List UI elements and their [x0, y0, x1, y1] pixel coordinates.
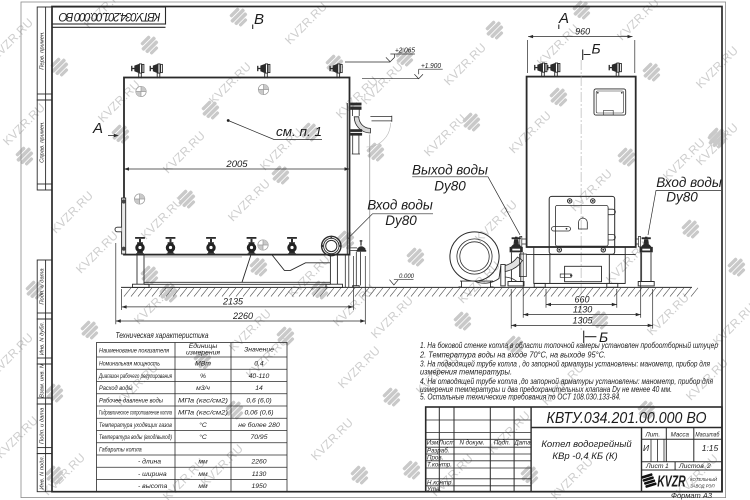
svg-text:°С: °С [199, 421, 207, 429]
svg-text:660: 660 [574, 294, 589, 304]
svg-text:Котел водогрейный: Котел водогрейный [541, 439, 632, 450]
svg-text:Лист: Лист [438, 440, 455, 447]
svg-text:1130: 1130 [252, 471, 267, 478]
svg-text:Лист: Лист [645, 463, 664, 470]
svg-text:Dy80: Dy80 [385, 213, 417, 228]
svg-text:Подп.: Подп. [494, 440, 510, 447]
svg-text:Листов: Листов [678, 463, 704, 470]
svg-text:+1.900: +1.900 [421, 63, 441, 70]
svg-text:Номинальная мощность: Номинальная мощность [99, 361, 160, 368]
svg-text:Взам. инв. N: Взам. инв. N [39, 363, 45, 398]
svg-text:14: 14 [255, 385, 263, 392]
svg-text:Масштаб: Масштаб [695, 431, 719, 438]
svg-text:МПа (кгс/см2): МПа (кгс/см2) [178, 397, 228, 404]
svg-text:5. Остальные технические треб: 5. Остальные технические требования по О… [420, 392, 621, 401]
svg-text:не более 280: не более 280 [238, 421, 280, 429]
svg-text:0,06 (0,6): 0,06 (0,6) [244, 410, 273, 417]
svg-text:Подп. и дата: Подп. и дата [39, 268, 45, 305]
svg-text:Температура воды (вход/выход): Температура воды (вход/выход) [99, 433, 172, 441]
svg-text:МПа (кгс/см2): МПа (кгс/см2) [178, 410, 228, 417]
svg-text:мм: мм [198, 459, 208, 466]
svg-text:Выход воды: Выход воды [412, 163, 488, 178]
svg-text:Т.контр.: Т.контр. [427, 461, 452, 468]
svg-text:Температура уходящих газов: Температура уходящих газов [99, 421, 172, 429]
svg-text:Вход воды: Вход воды [656, 175, 722, 190]
svg-text:Лит.: Лит. [645, 431, 661, 438]
svg-text:2005: 2005 [225, 159, 248, 170]
svg-text:Справ. примен.: Справ. примен. [39, 121, 45, 163]
svg-text:1:15: 1:15 [702, 443, 719, 453]
svg-text:1. На боковой стенке котла в: 1. На боковой стенке котла в области топ… [420, 341, 718, 350]
svg-text:Инв. N дубл.: Инв. N дубл. [39, 322, 45, 356]
svg-text:А: А [92, 120, 103, 137]
svg-text:измерения температуры.: измерения температуры. [420, 368, 512, 377]
svg-text:мм: мм [198, 483, 208, 490]
svg-text:КВТУ.034.201.00.000 ВО: КВТУ.034.201.00.000 ВО [547, 410, 707, 427]
svg-text:Диапазон рабочего регулировани: Диапазон рабочего регулирования [98, 372, 172, 380]
svg-text:- ширина: - ширина [138, 471, 167, 478]
svg-text:1305: 1305 [572, 315, 593, 325]
svg-text:- высота: - высота [138, 483, 167, 490]
svg-text:0,4: 0,4 [254, 361, 264, 368]
svg-text:70/95: 70/95 [250, 434, 267, 441]
svg-text:%: % [200, 373, 206, 380]
svg-text:Дата: Дата [513, 440, 531, 447]
svg-text:Единицы: Единицы [189, 342, 217, 350]
svg-text:B: B [254, 11, 264, 28]
svg-text:- длина: - длина [138, 458, 161, 466]
svg-text:Изм: Изм [427, 440, 439, 447]
svg-text:Наименование показателя: Наименование показателя [99, 347, 169, 354]
svg-text:1: 1 [665, 463, 669, 470]
svg-text:Б: Б [592, 41, 601, 57]
svg-text:И: И [643, 443, 650, 453]
svg-text:см. п. 1: см. п. 1 [276, 125, 322, 139]
svg-text:Значение: Значение [244, 347, 274, 354]
svg-text:+2.065: +2.065 [395, 48, 415, 55]
svg-text:2. Температура воды на входе: 2. Температура воды на входе 70°С, на вы… [419, 351, 606, 360]
svg-text:0.000: 0.000 [399, 273, 414, 280]
svg-text:0,6 (6,0): 0,6 (6,0) [246, 397, 271, 404]
svg-text:А: А [558, 10, 569, 27]
svg-text:1130: 1130 [573, 305, 592, 315]
svg-text:м3/ч: м3/ч [196, 385, 210, 392]
svg-text:мм: мм [198, 471, 208, 478]
svg-text:Вход воды: Вход воды [367, 198, 433, 213]
svg-text:Подп. и дата: Подп. и дата [39, 407, 45, 444]
svg-text:Инв. N подл.: Инв. N подл. [39, 456, 45, 490]
svg-text:Формат А3: Формат А3 [671, 491, 713, 500]
svg-text:KVZR: KVZR [657, 474, 686, 491]
svg-text:измерения: измерения [186, 350, 220, 357]
svg-text:Расход воды: Расход воды [99, 384, 133, 392]
svg-text:1950: 1950 [251, 483, 266, 490]
svg-text:2260: 2260 [232, 311, 253, 321]
svg-text:КВр -0,4 КБ (К): КВр -0,4 КБ (К) [552, 451, 617, 462]
svg-text:Рабочее давление воды: Рабочее давление воды [99, 396, 163, 404]
svg-text:Габариты котла: Габариты котла [99, 445, 142, 453]
svg-text:N докум.: N докум. [459, 440, 484, 447]
svg-text:°С: °С [199, 433, 207, 441]
svg-text:Dy80: Dy80 [666, 190, 698, 205]
svg-text:Гидравлическое сопротивление к: Гидравлическое сопротивление котла [99, 409, 172, 417]
svg-text:Техническая характеристика: Техническая характеристика [116, 330, 209, 340]
svg-text:МВт: МВт [195, 361, 211, 368]
svg-text:Перв. примен.: Перв. примен. [39, 31, 45, 70]
svg-text:960: 960 [575, 26, 590, 36]
svg-text:2260: 2260 [250, 459, 266, 466]
svg-text:Утв.: Утв. [426, 486, 441, 493]
svg-text:КВТУ.034.201.00.000 ВО: КВТУ.034.201.00.000 ВО [58, 10, 160, 22]
svg-text:2135: 2135 [222, 297, 244, 307]
svg-text:ЗАВОД РЭП: ЗАВОД РЭП [690, 484, 716, 489]
svg-text:Масса: Масса [671, 431, 690, 438]
svg-text:КОТЕЛЬНЫЙ: КОТЕЛЬНЫЙ [690, 477, 718, 482]
svg-text:Dy80: Dy80 [434, 179, 466, 194]
svg-text:2: 2 [706, 463, 711, 470]
svg-text:40-110: 40-110 [249, 373, 270, 380]
